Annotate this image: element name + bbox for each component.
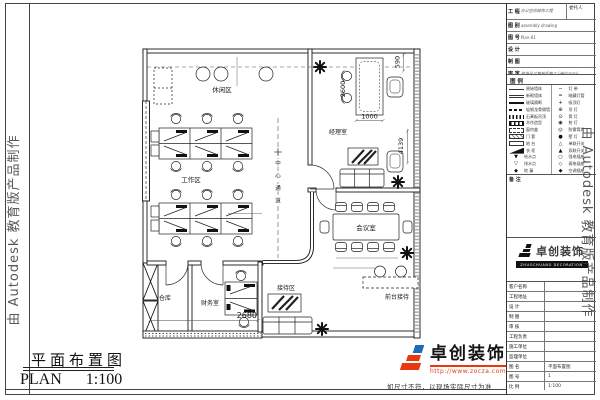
legend-label: 地 漏 <box>524 168 533 174</box>
legend-glyph: ○ <box>554 154 568 160</box>
row-label: 施工单位 <box>507 342 545 351</box>
table-row: 监理单位 <box>507 352 596 362</box>
legend-label: 原始墙体 <box>526 86 542 92</box>
field-row: 设 计 <box>507 44 596 56</box>
legend-label: 地 台 <box>526 141 535 147</box>
legend-glyph: ◆ <box>554 168 568 174</box>
legend-item: 玻璃隔断 <box>509 100 551 107</box>
company-logo-icon <box>519 243 533 259</box>
legend-swatch <box>509 102 524 105</box>
field-row: 制 图 <box>507 56 596 68</box>
field-value: Plan-01 <box>521 35 536 40</box>
legend-item: 地 台 <box>509 140 551 147</box>
row-label: 制 图 <box>507 312 545 321</box>
company-logo: 卓创装饰 http://www.zocza.com <box>400 344 506 375</box>
row-label: 比 例 <box>507 382 545 390</box>
company-logo-icon <box>400 344 426 372</box>
dim-1000: 1000 <box>361 113 378 121</box>
legend-label: 吊 灯 <box>569 107 578 113</box>
legend-label: 衣 柜 <box>526 148 535 154</box>
legend-glyph: ═ <box>554 93 568 99</box>
company-name: 卓创装饰 <box>536 243 584 259</box>
legend-item: 窗帘盒 <box>509 127 551 134</box>
svg-text:道: 道 <box>275 197 281 205</box>
field-value: assembly drawing <box>521 23 557 28</box>
room-label-reception: 接待区 <box>277 284 295 292</box>
svg-text:通: 通 <box>275 184 281 192</box>
title-block-fields: 工 程 办公空间装饰工程 委托人 图 别 assembly drawing 图 … <box>507 3 596 75</box>
field-row: 审 定 现场尺寸复核后施工 (单位:mm) <box>507 68 596 75</box>
legend-swatch <box>509 109 524 111</box>
legend-label: 射 灯 <box>569 120 578 126</box>
site-dimension-note: 如尺寸不符，以现场实际尺寸为准 <box>387 381 492 391</box>
legend-swatch <box>509 134 524 139</box>
drawing-sheet: 休闲区 工作区 经理室 会议室 仓库 财务室 接待区 前台接待 中 心 通 道 … <box>0 0 600 400</box>
row-label: 图 名 <box>507 362 545 371</box>
row-label: 工程地址 <box>507 292 545 301</box>
row-label: 图 号 <box>507 372 545 381</box>
autodesk-watermark-left: 由 Autodesk 教育版产品制作 <box>3 119 22 341</box>
legend-glyph: ◉ <box>554 120 568 126</box>
legend-label: 玻璃隔断 <box>526 100 542 106</box>
room-label-front-desk: 前台接待 <box>385 293 409 301</box>
legend-label: 石膏板吊顶 <box>526 114 546 120</box>
room-label-finance: 财务室 <box>201 299 219 307</box>
legend-glyph: + <box>554 100 568 106</box>
legend-item: 新砌墙体 <box>509 93 551 100</box>
company-name: 卓创装饰 <box>430 344 506 364</box>
autodesk-watermark-right: 由 Autodesk 教育版产品制作 <box>579 96 598 348</box>
legend-item: ◆ 地 漏 <box>509 168 551 175</box>
row-value: 1:100 <box>545 384 561 389</box>
dim-590: 590 <box>394 56 402 68</box>
legend-label: 门 套 <box>526 134 535 140</box>
legend-item: ─ 灯 带 <box>554 86 597 93</box>
legend-glyph: ⊙ <box>554 114 568 120</box>
svg-text:中: 中 <box>275 159 281 167</box>
legend-label: 壁 灯 <box>569 134 578 140</box>
legend-glyph: ▲ <box>554 148 568 154</box>
svg-text:心: 心 <box>275 173 281 180</box>
row-label: 监理单位 <box>507 352 545 361</box>
field-label: 图 别 <box>507 22 521 29</box>
field-label: 图 号 <box>507 34 521 41</box>
legend-swatch <box>509 148 524 154</box>
field-label: 工 程 <box>507 8 521 15</box>
legend-swatch <box>509 128 524 133</box>
legend-glyph: ▼ <box>509 154 523 160</box>
field-value: 办公空间装饰工程 <box>521 8 553 14</box>
legend-glyph: △ <box>554 141 568 147</box>
legend-glyph: ◆ <box>509 168 523 174</box>
dim-2600: 2600 <box>339 81 347 98</box>
legend-label: 灯 带 <box>569 86 578 92</box>
legend-swatch <box>509 89 524 90</box>
table-row: 比 例 1:100 <box>507 382 596 390</box>
legend-label: 窗帘盒 <box>526 127 538 133</box>
legend-item: 轻钢龙骨隔墙 <box>509 106 551 113</box>
drawing-scale: PLAN 1:100 <box>20 371 122 389</box>
table-row: 图 号 1 <box>507 372 596 382</box>
legend-label: 给水点 <box>524 154 536 160</box>
row-value: 平面布置图 <box>545 364 571 370</box>
legend-item: 原始墙体 <box>509 86 551 93</box>
field-client: 委托人 <box>566 3 596 19</box>
table-row: 图 名 平面布置图 <box>507 362 596 372</box>
room-label-work: 工作区 <box>181 175 201 184</box>
legend-swatch <box>509 141 524 146</box>
room-label-storage: 仓库 <box>159 294 171 302</box>
legend-label: 木作造型 <box>526 120 542 126</box>
drawing-title-en: PLAN <box>20 371 62 389</box>
legend-item: 门 套 <box>509 134 551 141</box>
dim-4139: 4139 <box>397 138 405 155</box>
legend-glyph: ▽ <box>509 161 523 167</box>
row-value: 1 <box>545 374 551 379</box>
row-label: 工程负责 <box>507 332 545 341</box>
field-label: 制 图 <box>507 58 521 65</box>
field-row: 图 号 Plan-01 <box>507 32 596 44</box>
scale-value: 1:100 <box>86 371 122 389</box>
field-project: 工 程 办公空间装饰工程 委托人 <box>507 3 596 20</box>
legend-swatch <box>509 121 524 126</box>
legend-glyph: ─ <box>554 86 568 92</box>
legend-title: 图 例 <box>507 75 596 85</box>
legend-label: 新砌墙体 <box>526 93 542 99</box>
legend-item: ▽ 排水点 <box>509 161 551 168</box>
legend-swatch <box>509 95 524 98</box>
legend-item: ▼ 给水点 <box>509 154 551 161</box>
room-label-manager: 经理室 <box>329 128 347 136</box>
company-url: http://www.zocza.com <box>430 365 506 375</box>
room-label-meeting: 会议室 <box>356 223 376 232</box>
field-row: 图 别 assembly drawing <box>507 20 596 32</box>
room-label-leisure: 休闲区 <box>212 85 232 94</box>
legend-item: 石膏板吊顶 <box>509 113 551 120</box>
legend-glyph: ◇ <box>554 161 568 167</box>
dim-2680: 2680 <box>237 311 257 320</box>
legend-item: 衣 柜 <box>509 147 551 154</box>
legend-label: 轻钢龙骨隔墙 <box>526 107 550 113</box>
legend-swatch <box>509 115 524 119</box>
field-label: 设 计 <box>507 46 521 53</box>
company-name-en: ZHUOCHUANG DECORATION <box>516 261 588 268</box>
row-label: 设 计 <box>507 302 545 311</box>
legend-label: 排水点 <box>524 161 536 167</box>
corridor-label: 中 心 通 道 <box>275 159 281 205</box>
legend-label: 筒 灯 <box>569 114 578 120</box>
legend-glyph: ● <box>554 134 568 140</box>
legend-glyph: ◎ <box>554 127 568 133</box>
row-label: 审 核 <box>507 322 545 331</box>
legend-glyph: ⊕ <box>554 107 568 113</box>
legend-item: 木作造型 <box>509 120 551 127</box>
row-label: 客户名称 <box>507 282 545 291</box>
